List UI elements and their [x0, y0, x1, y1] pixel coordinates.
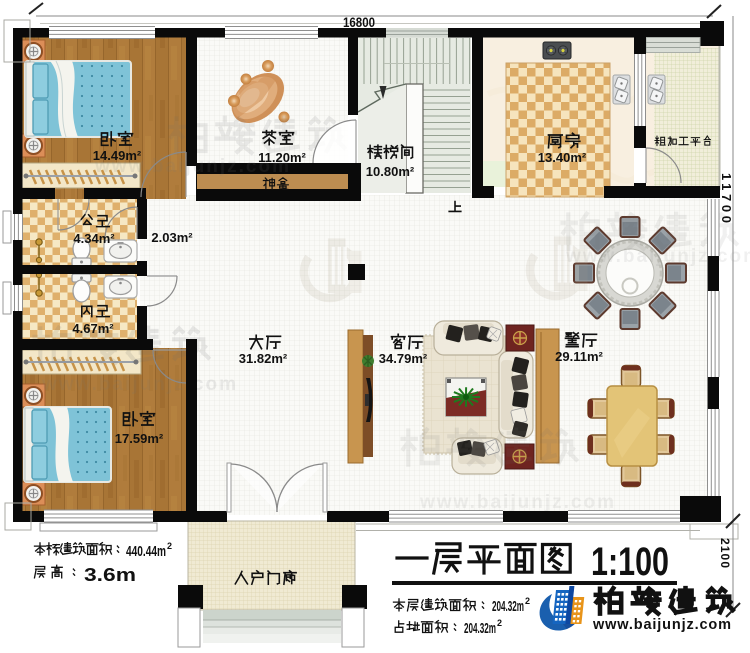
- svg-text:34.79m²: 34.79m²: [379, 351, 428, 366]
- svg-text:10.80m²: 10.80m²: [366, 164, 415, 179]
- svg-text:www.baijunjz.com: www.baijunjz.com: [41, 374, 238, 395]
- svg-text:2: 2: [525, 596, 530, 606]
- svg-text:204.32m: 204.32m: [464, 620, 496, 637]
- svg-text:www.baijunjz.com: www.baijunjz.com: [419, 492, 616, 513]
- svg-text:www.baijunjz.com: www.baijunjz.com: [592, 617, 731, 633]
- svg-text:13.40m²: 13.40m²: [538, 150, 587, 165]
- svg-text:16800: 16800: [343, 14, 375, 30]
- svg-text:2.03m²: 2.03m²: [151, 230, 193, 245]
- svg-text:14.49m²: 14.49m²: [93, 148, 142, 163]
- svg-text:11.20m²: 11.20m²: [258, 150, 306, 165]
- svg-text:4.34m²: 4.34m²: [73, 231, 115, 246]
- svg-text:2: 2: [497, 618, 502, 628]
- svg-text:4.67m²: 4.67m²: [72, 321, 114, 336]
- svg-text:17.59m²: 17.59m²: [115, 431, 164, 446]
- svg-text:440.44m: 440.44m: [126, 543, 166, 560]
- svg-text:31.82m²: 31.82m²: [239, 351, 288, 366]
- svg-text:29.11m²: 29.11m²: [555, 349, 603, 364]
- svg-text:2: 2: [167, 541, 172, 551]
- svg-text:2100: 2100: [718, 538, 732, 568]
- svg-text:1:100: 1:100: [591, 540, 669, 584]
- svg-text:3.6m: 3.6m: [84, 565, 136, 585]
- svg-text:204.32m: 204.32m: [492, 598, 524, 615]
- svg-text:www.baijunjz.com: www.baijunjz.com: [565, 246, 750, 267]
